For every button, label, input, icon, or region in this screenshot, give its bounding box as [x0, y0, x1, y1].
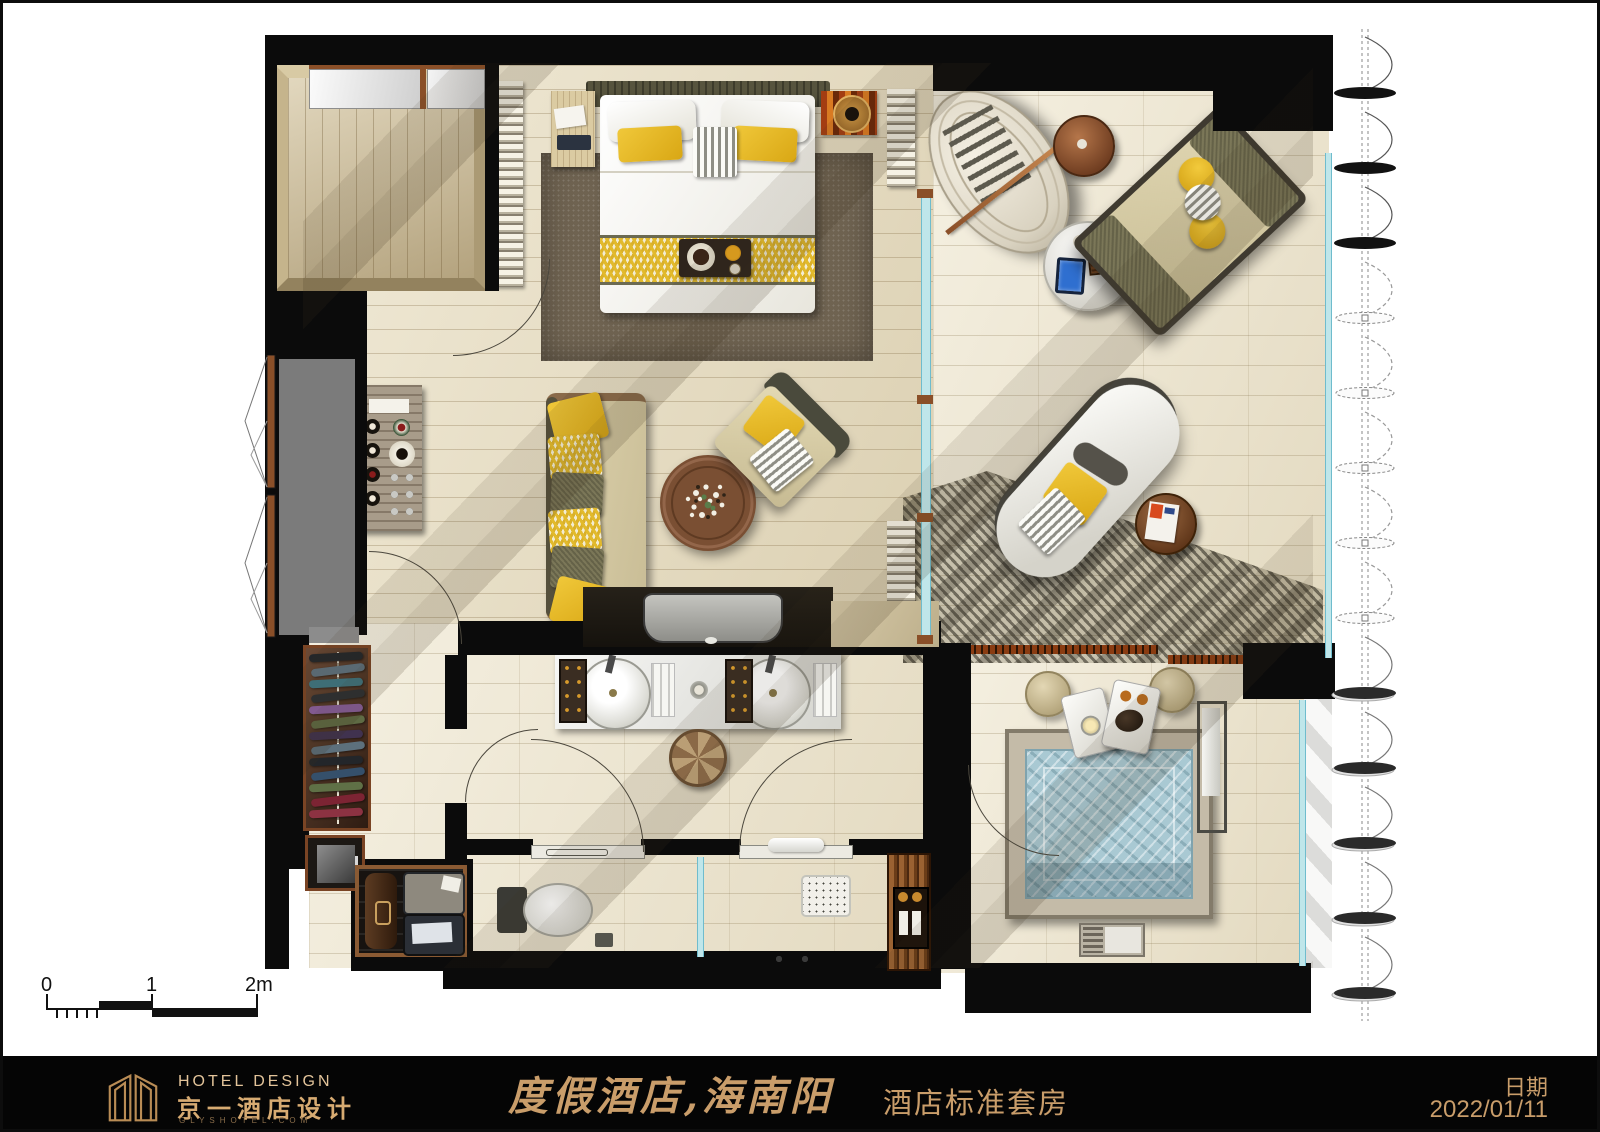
wall-shaft-right	[355, 359, 367, 635]
towel-ladder	[1197, 701, 1227, 833]
tablet	[1055, 257, 1086, 295]
copper-table-dot	[1077, 139, 1087, 149]
magazine-blue-bar	[1164, 507, 1175, 514]
wall-top-balcony	[933, 35, 1333, 91]
minibar-deco-plate	[393, 419, 410, 436]
hanger-garment	[311, 793, 366, 808]
cabinet-box	[893, 887, 929, 949]
hanger-garment	[309, 782, 363, 793]
suitcase-open-bottom	[403, 914, 465, 956]
minibar-bottle-2	[365, 443, 380, 458]
shower-drain	[801, 875, 851, 917]
nightstand	[551, 91, 595, 167]
cabinet-bottle-2	[912, 911, 921, 935]
title-block: HOTEL DESIGN 京一酒店设计 GLYSHOTEL.COM 度假酒店,海…	[3, 1056, 1600, 1132]
drawing-title: 酒店标准套房	[883, 1080, 1069, 1122]
hanger-garment	[311, 663, 366, 678]
nightstand-notepad	[554, 105, 586, 129]
tv-stand-dot	[705, 637, 717, 644]
minibar-plate	[389, 441, 415, 467]
wall-toilet-left-a	[445, 655, 467, 729]
wall-below-deck	[277, 291, 367, 359]
safe-door	[317, 845, 355, 883]
shower-valves	[771, 953, 815, 965]
wardrobe	[303, 645, 371, 831]
hotel-logo-icon	[103, 1073, 163, 1123]
scale-bar-bottom-segment	[152, 1008, 258, 1017]
bed-pillow-striped	[693, 127, 737, 177]
wall-glass-pier-a	[463, 839, 533, 855]
tray-plate	[687, 243, 715, 271]
cabinet-bottle-1	[899, 911, 908, 935]
ladder-towel	[1202, 708, 1220, 796]
bed-pillow-yellow-right	[732, 125, 798, 162]
wall-glass-pier-b	[641, 839, 741, 855]
hanger-garment	[309, 678, 363, 689]
wall-corner-step	[1213, 85, 1333, 131]
hanger-garment	[311, 689, 366, 704]
glass-partition-toilet-shower	[697, 857, 704, 957]
towel-stack-left	[651, 663, 675, 717]
hanger-garment	[309, 808, 363, 819]
hanger-garment	[311, 715, 366, 730]
hanger-garment	[311, 741, 366, 756]
scale-tick-4	[86, 1010, 88, 1018]
shutter-column	[1331, 29, 1407, 1021]
jacuzzi-step-slats	[1083, 927, 1103, 953]
duffel-bag	[365, 873, 397, 949]
scale-bar-top-segment	[99, 1001, 152, 1010]
wall-bath-bottom	[443, 951, 941, 989]
tray-left-candle	[1079, 714, 1103, 738]
glass-mullion-4	[917, 635, 933, 644]
hanger-garment	[309, 652, 363, 663]
hanger-garment	[309, 704, 363, 715]
glass-wall-living-balcony	[921, 193, 931, 643]
glass-mullion-2	[917, 395, 933, 404]
minibar-cups	[387, 469, 417, 521]
minibar-card	[369, 399, 409, 413]
minibar-bottle-3	[365, 467, 380, 482]
tray-right-kettle	[1114, 708, 1145, 734]
glass-mullion-1	[917, 189, 933, 198]
panel-mullion	[420, 67, 426, 109]
duffel-handle	[375, 901, 391, 925]
hanger-garment	[309, 756, 363, 767]
minibar-bottle-4	[365, 491, 380, 506]
soap-dish	[690, 681, 708, 699]
cabinet-jar-2	[912, 892, 922, 902]
hanger-garment	[309, 730, 363, 741]
presentation-board: 0 1 2m HOTEL DESIGN 京一酒店设计 GLYSHOTEL.COM…	[0, 0, 1600, 1132]
hanger-garment	[311, 767, 366, 782]
frosted-panel-right	[427, 69, 485, 109]
toilet-bowl	[523, 883, 593, 937]
wall-top	[265, 35, 941, 65]
tray-right-jar-1	[1119, 689, 1132, 702]
suitcase-shirt	[412, 922, 453, 944]
jacuzzi-seat-band	[1027, 863, 1191, 897]
tray-bowl	[725, 245, 741, 261]
service-shaft	[279, 359, 355, 635]
project-title: 度假酒店,海南阳光湾	[508, 1064, 868, 1132]
tv-screen	[643, 593, 783, 643]
wall-deck-right	[485, 65, 499, 291]
amenity-box-left	[559, 659, 587, 723]
glass-mullion-3	[917, 513, 933, 522]
tablet-screen	[1058, 260, 1083, 292]
scale-label-2m: 2m	[245, 974, 273, 997]
minibar-bottle-1	[365, 419, 380, 434]
glass-facade-lower	[1299, 700, 1306, 966]
suitcase-open-top	[403, 872, 465, 915]
scale-tick-5	[96, 1010, 98, 1018]
wardrobe-top-stub	[309, 627, 359, 643]
wall-jacuzzi-bottom	[965, 963, 1311, 1013]
bath-stool	[669, 729, 727, 787]
towel-stack-right	[813, 663, 837, 717]
wardrobe-hangers	[306, 648, 368, 828]
sink-left-drain	[609, 689, 617, 697]
tray-cup	[729, 263, 741, 275]
scale-bar: 0 1 2m	[33, 968, 283, 1023]
scale-tick-1	[56, 1010, 58, 1018]
amenity-box-right	[725, 659, 753, 723]
wall-left-upper	[265, 63, 277, 359]
rug-border-tiles-1	[948, 645, 1158, 654]
shower-slat-cabinet	[887, 853, 931, 971]
toilet-paper-holder	[595, 933, 613, 947]
bed-pillow-yellow-left	[617, 125, 683, 162]
tray-right-jar-2	[1136, 693, 1149, 706]
sink-right-drain	[769, 689, 777, 697]
jacuzzi-step	[1079, 923, 1145, 957]
logo-website: GLYSHOTEL.COM	[179, 1116, 312, 1125]
curtain-blinds-left	[495, 81, 523, 287]
jacuzzi-step-mat	[1105, 927, 1141, 953]
facade-shadow-strip	[1304, 663, 1332, 968]
scale-tick-3	[76, 1010, 78, 1018]
nightstand-phone	[557, 135, 591, 150]
accent-mat-tray	[833, 95, 871, 133]
suitcase-paper	[441, 875, 462, 892]
magazine-red-bar	[1150, 503, 1164, 519]
luggage-bench	[355, 865, 467, 957]
date-value: 2022/01/11	[1383, 1096, 1548, 1124]
wall-left-bottom	[265, 869, 289, 969]
casement-window-symbols	[237, 355, 281, 639]
magazine	[1145, 501, 1180, 543]
cabinet-jar-1	[898, 892, 908, 902]
scale-tick-2	[66, 1010, 68, 1018]
frosted-panel-left	[309, 69, 421, 109]
wall-right-step	[1243, 643, 1335, 699]
